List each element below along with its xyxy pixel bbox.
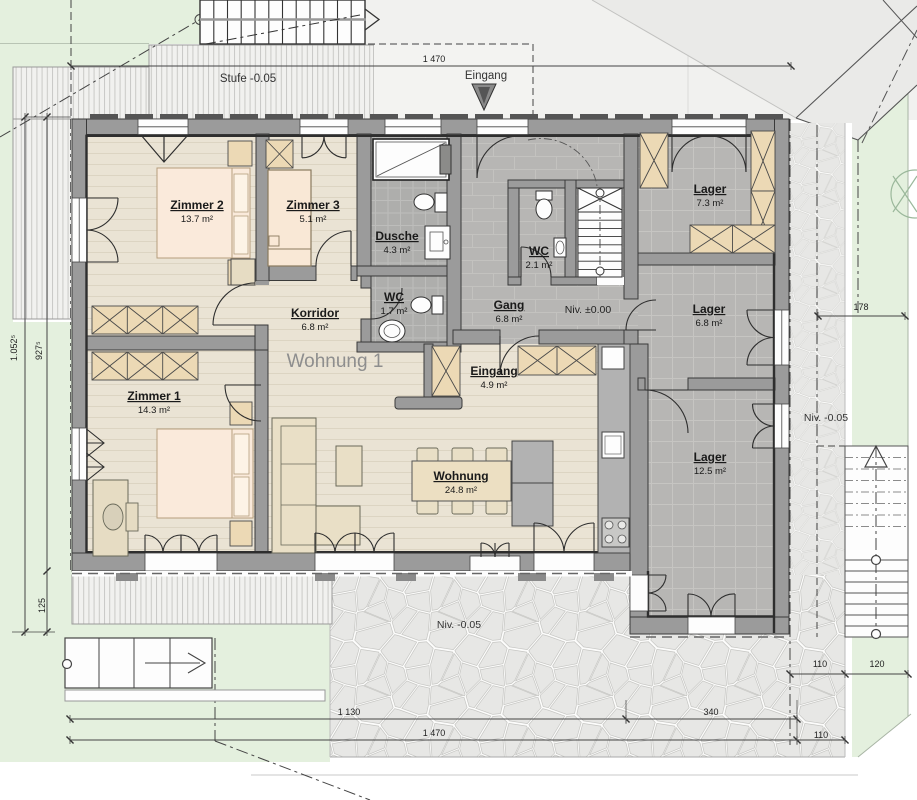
svg-text:12.5 m²: 12.5 m² [694,466,726,477]
svg-text:340: 340 [703,707,718,717]
svg-text:Eingang: Eingang [465,70,507,82]
svg-text:Stufe -0.05: Stufe -0.05 [220,73,276,85]
svg-text:1.7 m²: 1.7 m² [381,306,408,317]
svg-text:1.052⁵: 1.052⁵ [9,334,19,361]
svg-text:Korridor: Korridor [291,306,339,320]
svg-text:WC: WC [384,290,404,304]
svg-text:1 470: 1 470 [423,728,446,738]
svg-text:Lager: Lager [694,450,727,464]
svg-text:Dusche: Dusche [375,229,419,243]
svg-text:6.8 m²: 6.8 m² [302,322,329,333]
svg-text:Eingang: Eingang [470,364,517,378]
svg-text:178: 178 [853,302,868,312]
svg-text:Zimmer 2: Zimmer 2 [170,198,224,212]
svg-text:1 130: 1 130 [338,707,361,717]
svg-text:Niv. -0.05: Niv. -0.05 [437,619,481,631]
svg-text:Lager: Lager [693,302,726,316]
svg-text:WC: WC [529,244,549,258]
svg-text:6.8 m²: 6.8 m² [496,314,523,325]
svg-text:24.8 m²: 24.8 m² [445,485,477,496]
svg-text:Wohnung 1: Wohnung 1 [287,351,384,372]
svg-text:7.3 m²: 7.3 m² [697,198,724,209]
svg-text:Zimmer 1: Zimmer 1 [127,389,181,403]
svg-text:110: 110 [814,730,828,740]
svg-text:13.7 m²: 13.7 m² [181,214,213,225]
svg-text:927⁵: 927⁵ [34,341,44,360]
svg-text:Niv. -0.05: Niv. -0.05 [804,412,848,424]
svg-text:1 470: 1 470 [423,54,446,64]
svg-text:6.8 m²: 6.8 m² [696,318,723,329]
svg-text:Wohnung: Wohnung [433,469,488,483]
svg-text:Zimmer 3: Zimmer 3 [286,198,340,212]
svg-text:4.9 m²: 4.9 m² [481,380,508,391]
svg-text:110: 110 [813,659,827,669]
svg-text:4.3 m²: 4.3 m² [384,245,411,256]
svg-text:Niv. ±0.00: Niv. ±0.00 [565,304,612,316]
svg-text:2.1 m²: 2.1 m² [526,260,553,271]
svg-text:14.3 m²: 14.3 m² [138,405,170,416]
svg-text:Lager: Lager [694,182,727,196]
svg-text:125: 125 [37,598,47,613]
svg-text:5.1 m²: 5.1 m² [300,214,327,225]
svg-text:120: 120 [869,659,884,669]
svg-text:Gang: Gang [494,298,525,312]
